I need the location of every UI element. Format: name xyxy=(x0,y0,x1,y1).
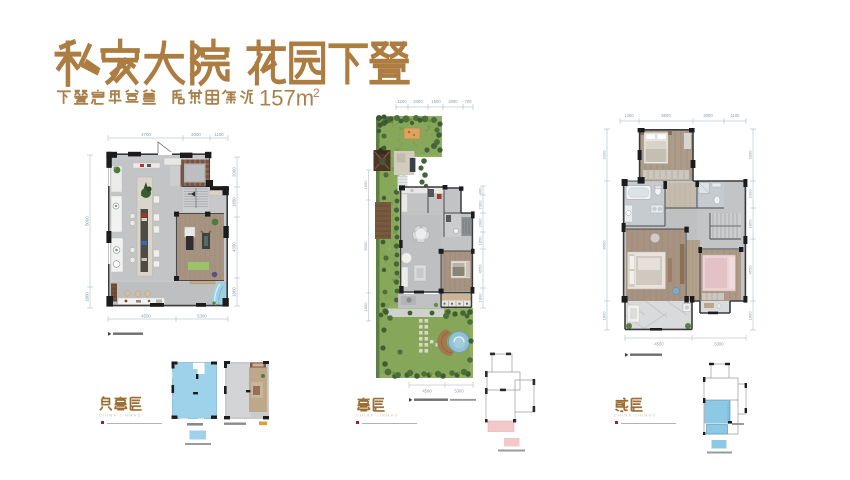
svg-text:5300: 5300 xyxy=(454,389,464,394)
svg-text:1800: 1800 xyxy=(602,311,607,321)
svg-text:2000: 2000 xyxy=(478,218,483,228)
svg-text:1800: 1800 xyxy=(85,292,90,302)
svg-text:5300: 5300 xyxy=(197,313,207,318)
svg-text:3300: 3300 xyxy=(602,150,607,160)
svg-text:4500: 4500 xyxy=(141,313,151,318)
svg-text:1200: 1200 xyxy=(397,99,407,104)
svg-text:1850: 1850 xyxy=(478,236,483,246)
svg-text:1500: 1500 xyxy=(363,180,368,190)
svg-text:4500: 4500 xyxy=(654,342,664,347)
svg-text:4550: 4550 xyxy=(748,265,753,275)
svg-text:4350: 4350 xyxy=(232,242,237,252)
svg-text:1800: 1800 xyxy=(232,287,237,297)
svg-text:1800: 1800 xyxy=(478,293,483,303)
svg-text:2300: 2300 xyxy=(478,200,483,210)
svg-text:1100: 1100 xyxy=(214,132,224,137)
svg-text:3300: 3300 xyxy=(748,150,753,160)
svg-text:5300: 5300 xyxy=(714,342,724,347)
svg-text:157m: 157m xyxy=(259,87,314,109)
svg-text:1100: 1100 xyxy=(730,113,740,118)
svg-text:2000: 2000 xyxy=(191,132,201,137)
svg-text:1800: 1800 xyxy=(363,302,368,312)
svg-text:1800: 1800 xyxy=(748,311,753,321)
svg-text:2: 2 xyxy=(313,87,320,100)
svg-text:1500: 1500 xyxy=(431,99,441,104)
svg-text:4700: 4700 xyxy=(141,132,151,137)
svg-text:1850: 1850 xyxy=(748,219,753,229)
svg-text:1850: 1850 xyxy=(232,197,237,207)
svg-text:4550: 4550 xyxy=(478,264,483,274)
svg-text:2000: 2000 xyxy=(448,99,458,104)
svg-text:800: 800 xyxy=(478,187,483,194)
svg-text:5500: 5500 xyxy=(661,113,671,118)
svg-text:2000: 2000 xyxy=(748,189,753,199)
svg-text:4500: 4500 xyxy=(422,389,432,394)
svg-text:8000: 8000 xyxy=(363,241,368,251)
svg-text:2000: 2000 xyxy=(703,113,713,118)
svg-text:700: 700 xyxy=(465,99,473,104)
svg-text:1200: 1200 xyxy=(624,113,634,118)
svg-text:2000: 2000 xyxy=(413,99,423,104)
svg-text:8000: 8000 xyxy=(602,240,607,250)
svg-text:2000: 2000 xyxy=(232,167,237,177)
svg-text:8000: 8000 xyxy=(85,216,90,226)
